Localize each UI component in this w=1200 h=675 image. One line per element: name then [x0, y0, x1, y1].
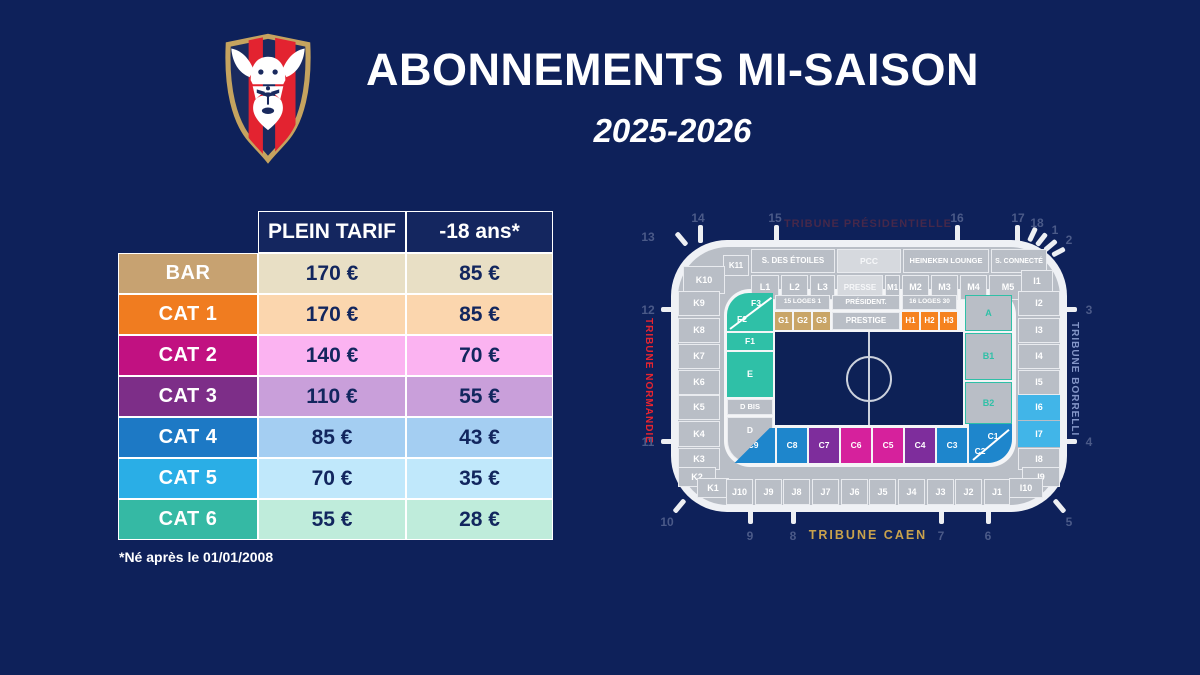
- stadium-section-a: A: [965, 295, 1012, 331]
- tribune-caen-label: TRIBUNE CAEN: [718, 528, 1018, 542]
- stadium-section-g1: G1: [775, 312, 792, 330]
- stadium-section-c3: C3: [937, 428, 967, 463]
- stadium-section-g2: G2: [794, 312, 811, 330]
- price-cat4-full: 85 €: [258, 417, 406, 458]
- gate-number-17: 17: [1011, 211, 1024, 225]
- stadium-section-c2: C2: [968, 445, 992, 457]
- row-label-cat4: CAT 4: [118, 417, 258, 458]
- gate-number-8: 8: [790, 529, 797, 543]
- stadium-section-j6: J6: [841, 479, 868, 505]
- stadium-section-h2: H2: [921, 312, 938, 330]
- gate-number-14: 14: [691, 211, 704, 225]
- row-label-cat5: CAT 5: [118, 458, 258, 499]
- gate-number-13: 13: [641, 230, 654, 244]
- stadium-section-c4: C4: [905, 428, 935, 463]
- stadium-section-i2: I2: [1018, 291, 1060, 316]
- price-cat5-youth: 35 €: [406, 458, 553, 499]
- pricing-table: PLEIN TARIF -18 ans* BAR 170 € 85 € CAT …: [118, 211, 553, 540]
- stadium-section-16-loges-30: 16 LOGES 30: [902, 295, 957, 310]
- gate-number-10: 10: [660, 515, 673, 529]
- tribune-borrelli-label: TRIBUNE BORRELLI: [1069, 322, 1080, 497]
- stadium-section-j7: J7: [812, 479, 839, 505]
- stadium-section-b1: B1: [965, 333, 1012, 380]
- stadium-section-k7: K7: [678, 344, 720, 369]
- gate-number-9: 9: [747, 529, 754, 543]
- row-label-bar: BAR: [118, 253, 258, 294]
- stadium-section-c1: C1: [981, 430, 1005, 442]
- stadium-section-j3: J3: [927, 479, 954, 505]
- gate-tick: [1051, 247, 1066, 258]
- stadium-section-i6: I6: [1018, 395, 1060, 420]
- stadium-section-k5: K5: [678, 395, 720, 420]
- gate-number-4: 4: [1086, 435, 1093, 449]
- stadium-section-j5: J5: [869, 479, 896, 505]
- poster-canvas: ABONNEMENTS MI-SAISON 2025-2026 PLEIN TA…: [0, 0, 1200, 675]
- price-cat2-full: 140 €: [258, 335, 406, 376]
- stadium-section-f2: F2: [729, 313, 755, 326]
- page-title: ABONNEMENTS MI-SAISON: [350, 44, 995, 96]
- stadium-section-k8: K8: [678, 318, 720, 343]
- row-label-cat3: CAT 3: [118, 376, 258, 417]
- row-label-cat6: CAT 6: [118, 499, 258, 540]
- price-cat1-full: 170 €: [258, 294, 406, 335]
- price-bar-full: 170 €: [258, 253, 406, 294]
- stadium-section-e: E: [727, 352, 773, 397]
- gate-number-15: 15: [768, 211, 781, 225]
- stadium-section-i5: I5: [1018, 370, 1060, 395]
- stadium-section-h1: H1: [902, 312, 919, 330]
- price-cat6-full: 55 €: [258, 499, 406, 540]
- table-corner-spacer: [118, 211, 258, 253]
- stadium-section-pr-sident-: PRÉSIDENT.: [832, 295, 900, 310]
- stadium-section-k1: K1: [697, 478, 729, 498]
- gate-number-6: 6: [985, 529, 992, 543]
- stadium-map: TRIBUNE PRÉSIDENTIELLE TRIBUNE NORMANDIE…: [623, 192, 1093, 577]
- tribune-normandie-label: TRIBUNE NORMANDIE: [643, 318, 654, 488]
- gate-number-2: 2: [1066, 233, 1073, 247]
- column-header-full-price: PLEIN TARIF: [258, 211, 406, 253]
- stadium-section-15-loges-1: 15 LOGES 1: [775, 295, 830, 310]
- price-cat6-youth: 28 €: [406, 499, 553, 540]
- stadium-section-f3: F3: [743, 297, 769, 310]
- price-bar-youth: 85 €: [406, 253, 553, 294]
- stadium-section-c5: C5: [873, 428, 903, 463]
- stadium-section-c6: C6: [841, 428, 871, 463]
- stadium-section-i7: I7: [1018, 421, 1060, 447]
- football-pitch: [775, 332, 963, 425]
- stadium-section-i3: I3: [1018, 318, 1060, 343]
- gate-number-5: 5: [1066, 515, 1073, 529]
- center-circle: [846, 356, 892, 402]
- gate-tick: [674, 231, 688, 246]
- gate-number-3: 3: [1086, 303, 1093, 317]
- stadium-section-c8: C8: [777, 428, 807, 463]
- stadium-section-j4: J4: [898, 479, 925, 505]
- stadium-section-k11: K11: [723, 255, 749, 276]
- stadium-section-j8: J8: [783, 479, 810, 505]
- tribune-presidentielle-label: TRIBUNE PRÉSIDENTIELLE: [718, 218, 1018, 230]
- column-header-youth-price: -18 ans*: [406, 211, 553, 253]
- age-footnote: *Né après le 01/01/2008: [119, 549, 273, 565]
- stadium-section-k6: K6: [678, 370, 720, 395]
- stadium-section-heineken-lounge: HEINEKEN LOUNGE: [903, 249, 989, 273]
- stadium-section-j1: J1: [984, 479, 1010, 505]
- gate-tick: [672, 498, 686, 513]
- season-subtitle: 2025-2026: [350, 112, 995, 150]
- stadium-section-s-des-toiles: S. DES ÉTOILES: [751, 249, 835, 273]
- price-cat3-youth: 55 €: [406, 376, 553, 417]
- price-cat1-youth: 85 €: [406, 294, 553, 335]
- club-crest-logo: [216, 32, 320, 164]
- gate-number-12: 12: [641, 303, 654, 317]
- stadium-section-i10: I10: [1009, 478, 1043, 498]
- gate-tick: [1052, 498, 1066, 513]
- row-label-cat1: CAT 1: [118, 294, 258, 335]
- stadium-section-c7: C7: [809, 428, 839, 463]
- gate-number-11: 11: [642, 435, 655, 449]
- gate-number-7: 7: [938, 529, 945, 543]
- stadium-section-h3: H3: [940, 312, 957, 330]
- price-cat5-full: 70 €: [258, 458, 406, 499]
- stadium-section-j9: J9: [755, 479, 782, 505]
- gate-tick: [698, 225, 703, 243]
- stadium-section-k10: K10: [683, 266, 725, 294]
- gate-number-1: 1: [1052, 223, 1059, 237]
- stadium-section-f1: F1: [727, 333, 773, 350]
- stadium-section-pcc: PCC: [837, 249, 901, 273]
- price-cat4-youth: 43 €: [406, 417, 553, 458]
- stadium-section-i1: I1: [1021, 270, 1053, 292]
- stadium-section-b2: B2: [965, 382, 1012, 424]
- stadium-section-j2: J2: [955, 479, 982, 505]
- gate-number-16: 16: [950, 211, 963, 225]
- stadium-section-i4: I4: [1018, 344, 1060, 369]
- price-cat3-full: 110 €: [258, 376, 406, 417]
- price-cat2-youth: 70 €: [406, 335, 553, 376]
- stadium-section-prestige: PRESTIGE: [832, 312, 900, 330]
- gate-number-18: 18: [1030, 216, 1043, 230]
- stadium-section-j10: J10: [726, 479, 753, 505]
- stadium-section-d-bis: D BIS: [727, 399, 773, 415]
- row-label-cat2: CAT 2: [118, 335, 258, 376]
- stadium-section-g3: G3: [813, 312, 830, 330]
- stadium-section-k9: K9: [678, 291, 720, 316]
- stadium-section-k4: K4: [678, 421, 720, 447]
